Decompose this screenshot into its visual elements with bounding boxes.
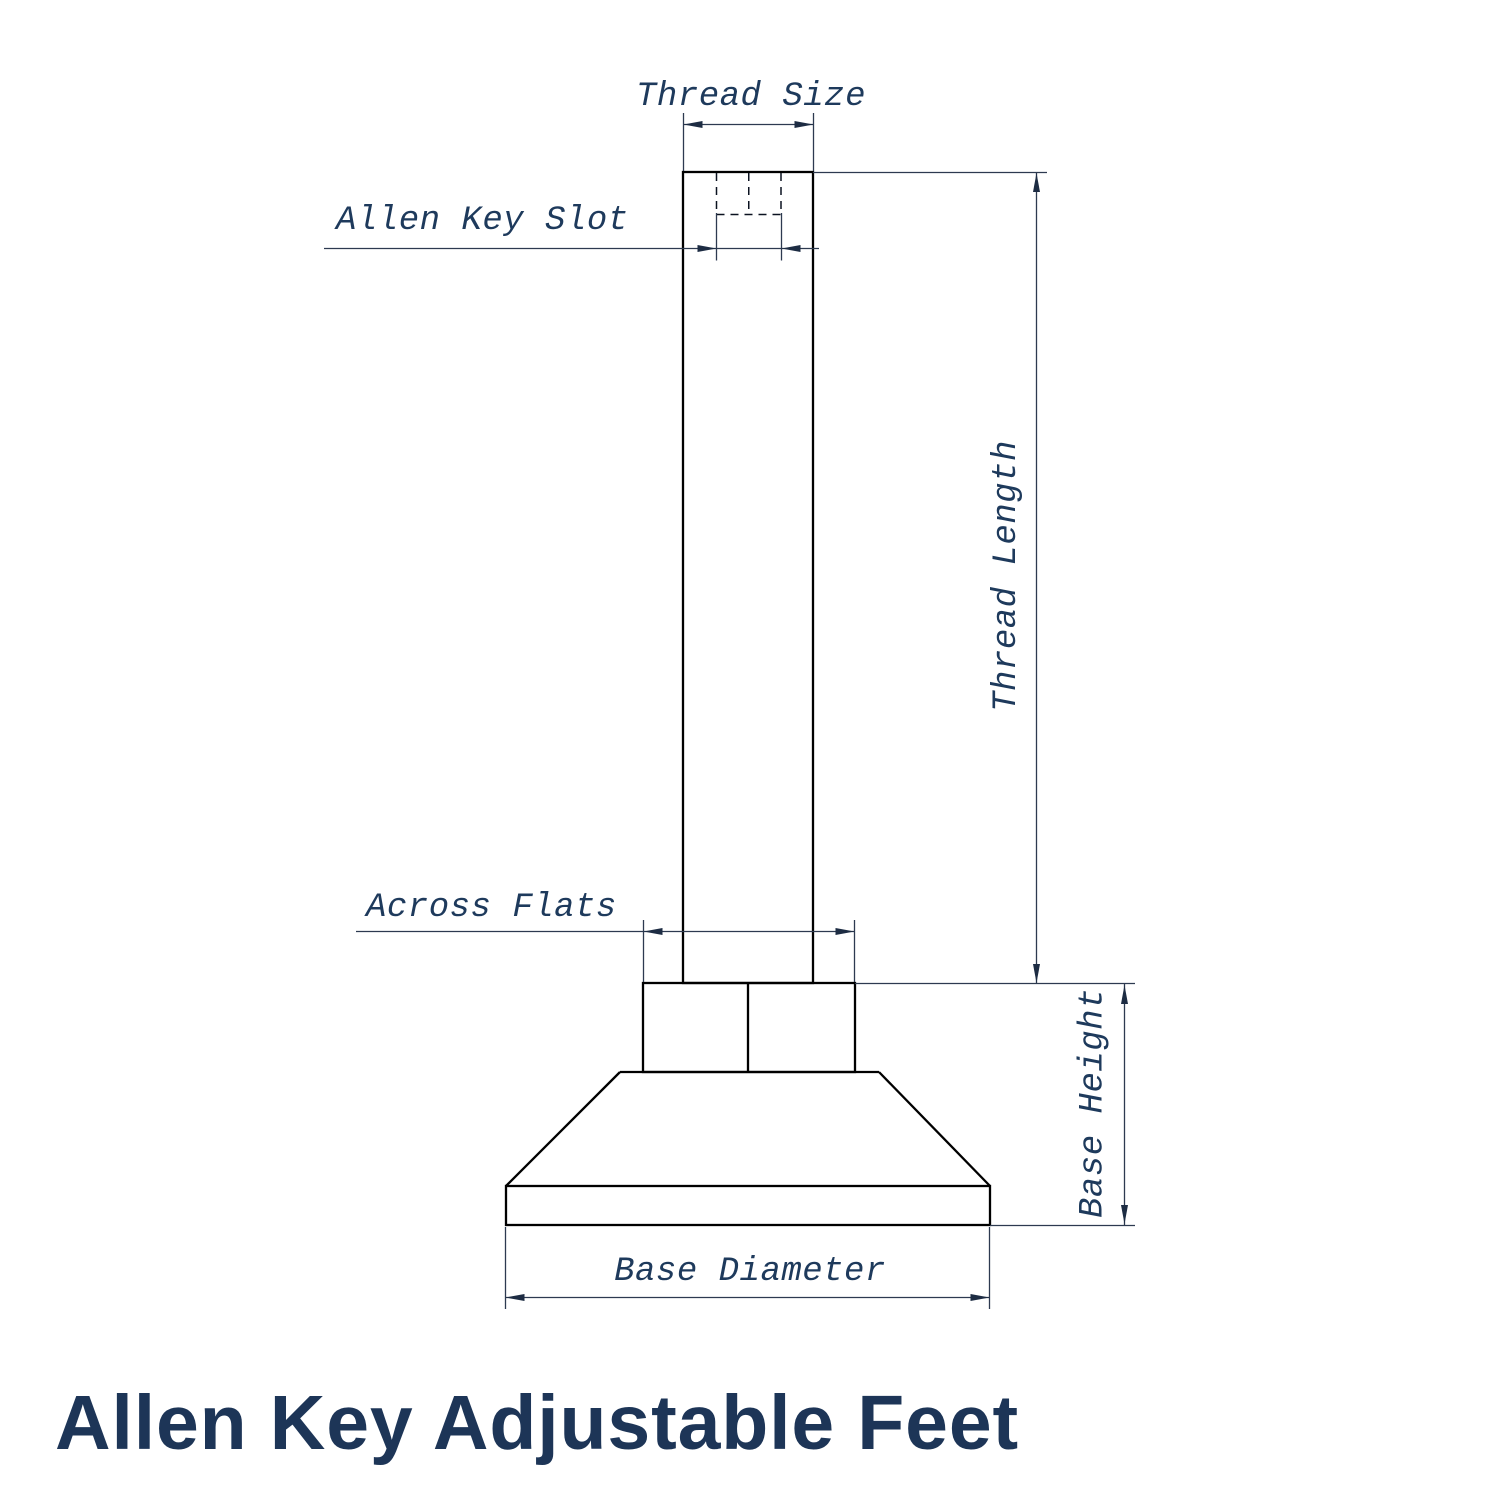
svg-text:Thread Size: Thread Size [636, 78, 866, 116]
svg-text:Thread Length: Thread Length [988, 440, 1026, 712]
svg-text:Allen Key Adjustable Feet: Allen Key Adjustable Feet [55, 1380, 1019, 1466]
svg-text:Base Height: Base Height [1075, 988, 1113, 1218]
svg-text:Base Diameter: Base Diameter [614, 1253, 886, 1291]
svg-text:Across Flats: Across Flats [364, 889, 617, 927]
svg-text:Allen Key Slot: Allen Key Slot [334, 202, 629, 240]
